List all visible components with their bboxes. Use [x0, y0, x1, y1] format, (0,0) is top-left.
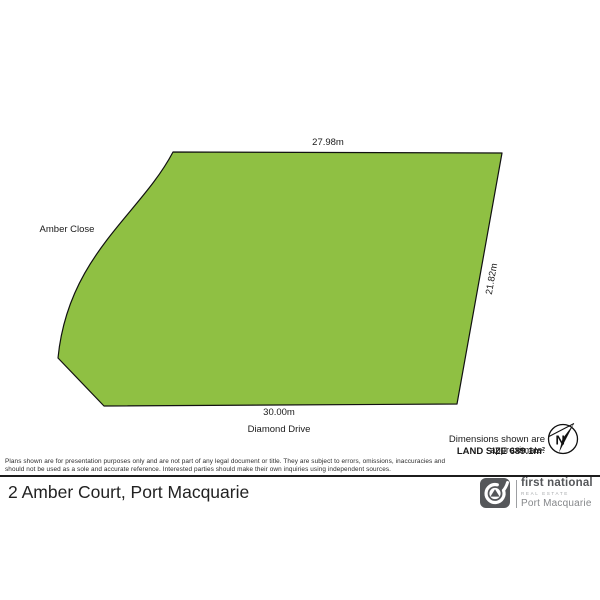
- street-label-diamond-drive: Diamond Drive: [248, 424, 311, 435]
- dimension-top: 27.98m: [312, 137, 344, 148]
- north-compass-icon: N: [544, 420, 582, 458]
- brand-name: first national: [521, 478, 593, 490]
- street-label-amber-close: Amber Close: [40, 224, 95, 235]
- compass-north-label: N: [556, 433, 565, 448]
- land-size-value: LAND SIZE 689.1m²: [403, 446, 545, 457]
- dimension-bottom: 30.00m: [263, 407, 295, 418]
- first-national-logo-icon: [480, 478, 510, 508]
- brand-tagline: REAL ESTATE: [521, 492, 593, 497]
- parcel-diagram: [0, 0, 600, 600]
- land-parcel: [58, 152, 502, 406]
- disclaimer-line-2: should not be used as a sole and accurat…: [5, 466, 445, 473]
- brand-block: first national REAL ESTATE Port Macquari…: [521, 478, 593, 509]
- property-address: 2 Amber Court, Port Macquarie: [8, 482, 249, 503]
- brand-office: Port Macquarie: [521, 499, 593, 509]
- logo-text-divider: [516, 480, 517, 508]
- footer-divider: [0, 475, 600, 477]
- land-plan-page: 27.98m 21.82m 30.00m Amber Close Diamond…: [0, 0, 600, 600]
- disclaimer-line-1: Plans shown are for presentation purpose…: [5, 458, 445, 465]
